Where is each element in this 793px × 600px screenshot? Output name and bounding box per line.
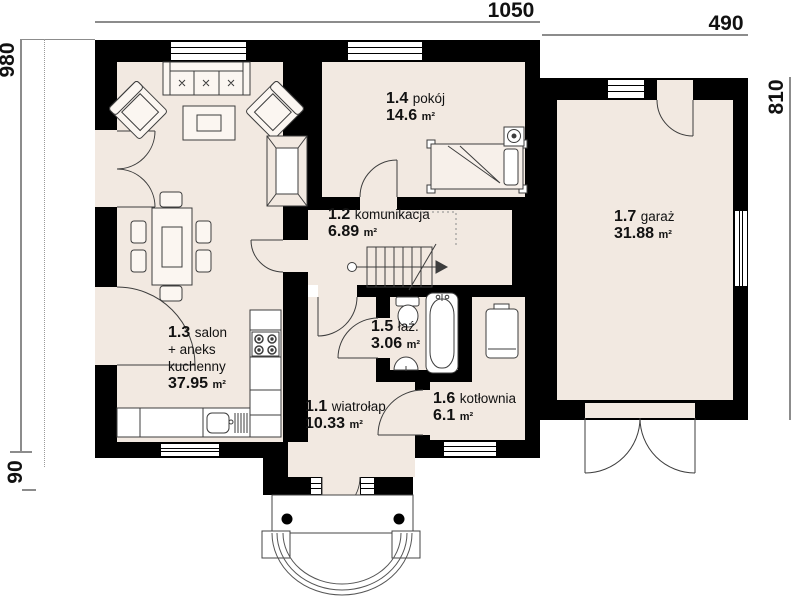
room-area: 10.33 xyxy=(305,415,345,432)
door-terrace-double xyxy=(117,131,155,207)
porch-column-left xyxy=(282,514,293,525)
dimension-label-980: 980 xyxy=(0,30,20,90)
dimension-tick-top-left xyxy=(20,39,95,40)
room-area-unit: m² xyxy=(350,419,363,431)
room-name: kotłownia xyxy=(460,391,516,406)
floor-plan: 1.1 wiatrołap 10.33 m² 1.2 komunikacja 6… xyxy=(0,0,793,600)
room-number: 1.1 xyxy=(305,398,327,415)
room-area: 3.06 xyxy=(371,335,402,352)
fireplace xyxy=(267,136,307,206)
dimension-line-left xyxy=(20,39,22,452)
room-name: łaź. xyxy=(398,319,419,334)
kitchen-sink xyxy=(207,413,247,433)
room-name: garaż xyxy=(641,209,675,224)
room-area-unit: m² xyxy=(213,379,226,391)
dining-table xyxy=(152,208,192,285)
porch-column-right xyxy=(394,514,405,525)
sofa xyxy=(163,62,250,95)
door-komunikacja-wiatrolap xyxy=(318,297,357,336)
room-area-unit: m² xyxy=(364,227,377,239)
porch xyxy=(262,495,420,595)
stairs-direction-arrow xyxy=(436,261,447,273)
room-area: 37.95 xyxy=(168,375,208,392)
room-area: 14.6 xyxy=(386,107,417,124)
room-number: 1.3 xyxy=(168,324,190,341)
room-label-wiatrolap: 1.1 wiatrołap 10.33 m² xyxy=(305,398,386,434)
nightstand xyxy=(504,127,524,146)
door-garage-gate xyxy=(585,418,695,473)
dimension-line-right xyxy=(789,77,791,420)
room-number: 1.5 xyxy=(371,318,393,335)
room-number: 1.7 xyxy=(614,208,636,225)
dimension-dotted-reference xyxy=(44,39,45,467)
room-label-komunikacja: 1.2 komunikacja 6.89 m² xyxy=(328,206,430,242)
stove xyxy=(252,332,279,356)
room-number: 1.6 xyxy=(433,390,455,407)
door-salon-komunikacja xyxy=(251,240,283,272)
room-area-unit: m² xyxy=(422,111,435,123)
dimension-label-90: 90 xyxy=(4,442,28,502)
coffee-table xyxy=(183,106,235,140)
porch-steps xyxy=(272,533,412,595)
bed xyxy=(427,140,527,193)
room-area: 31.88 xyxy=(614,225,654,242)
room-name: wiatrołap xyxy=(332,399,386,414)
room-label-pokoj: 1.4 pokój 14.6 m² xyxy=(386,90,445,126)
room-label-garaz: 1.7 garaż 31.88 m² xyxy=(614,208,674,244)
door-garage-entry xyxy=(657,100,693,136)
room-label-lazienka: 1.5 łaź. 3.06 m² xyxy=(371,318,420,354)
dimension-label-490: 490 xyxy=(676,12,776,36)
room-number: 1.2 xyxy=(328,206,350,223)
room-name: pokój xyxy=(413,91,445,106)
room-area-unit: m² xyxy=(460,411,473,423)
dimension-label-1050: 1050 xyxy=(461,0,561,23)
room-label-salon: 1.3 salon + aneks kuchenny 37.95 m² xyxy=(168,324,227,394)
dimension-label-810: 810 xyxy=(765,67,789,127)
boiler xyxy=(486,304,518,358)
room-area-unit: m² xyxy=(659,229,672,241)
door-pokoj xyxy=(360,160,397,197)
room-area-unit: m² xyxy=(407,339,420,351)
room-area: 6.1 xyxy=(433,407,455,424)
room-number: 1.4 xyxy=(386,90,408,107)
armchair-right xyxy=(245,80,304,139)
room-name: komunikacja xyxy=(355,207,430,222)
bathtub xyxy=(426,293,458,373)
room-label-kotlownia: 1.6 kotłownia 6.1 m² xyxy=(433,390,516,426)
room-area: 6.89 xyxy=(328,223,359,240)
bathroom-sink xyxy=(394,357,418,371)
